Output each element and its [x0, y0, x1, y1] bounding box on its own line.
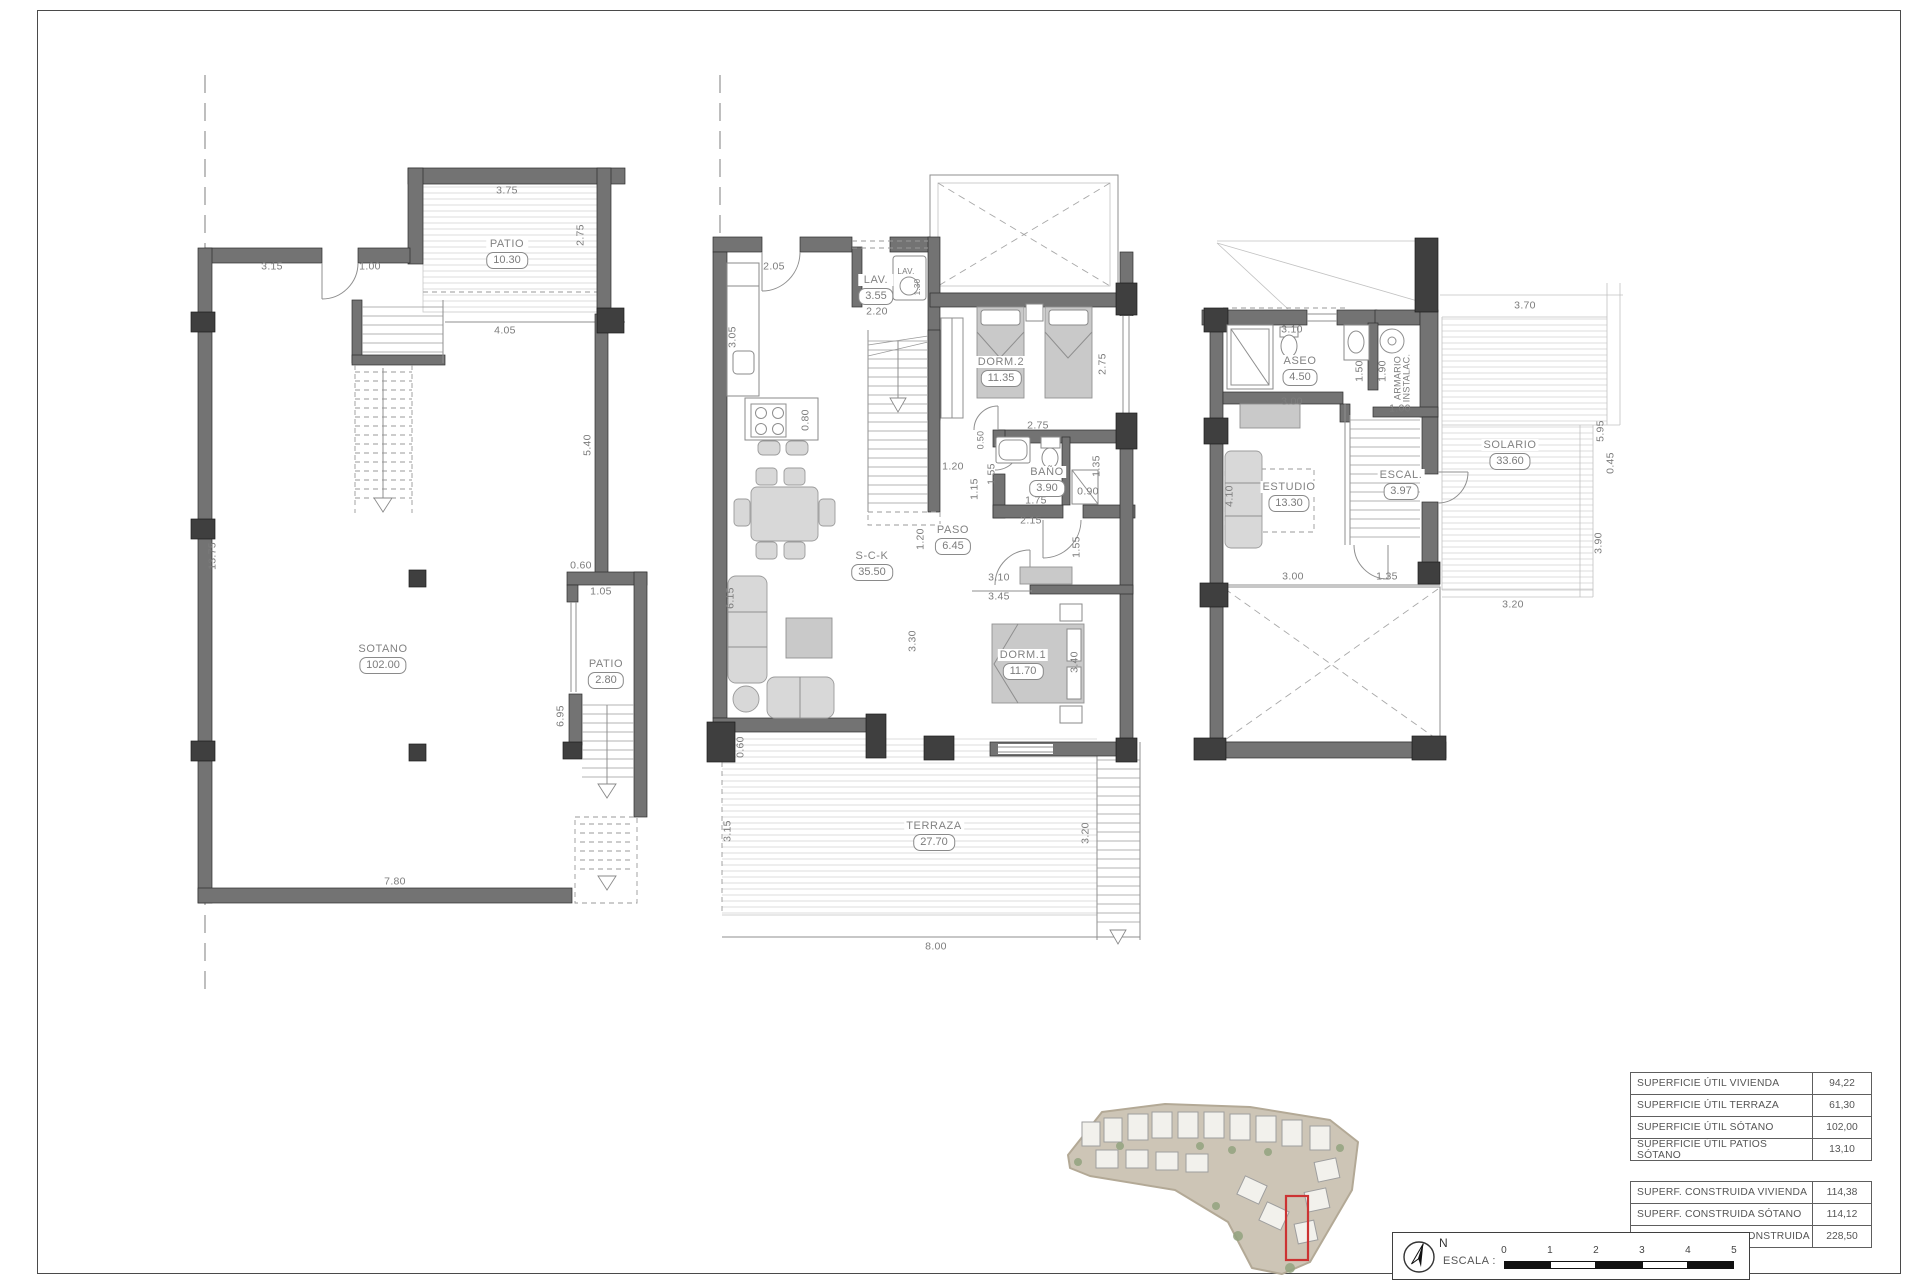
table-row: SUPERF. CONSTRUIDA SÓTANO 114,12 — [1631, 1204, 1871, 1226]
room-name: DORM.2 — [976, 356, 1026, 368]
room-label-paso: PASO6.45 — [935, 524, 971, 555]
room-name: ESCAL. — [1378, 469, 1425, 481]
room-label-terraza: TERRAZA27.70 — [904, 820, 964, 851]
room-area-badge: 10.30 — [486, 252, 528, 269]
table-superficie-util: SUPERFICIE ÚTIL VIVIENDA 94,22 SUPERFICI… — [1630, 1072, 1872, 1161]
room-area-badge: 33.60 — [1489, 453, 1531, 470]
room-name: ASEO — [1282, 355, 1319, 367]
room-name: SOLARIO — [1481, 439, 1538, 451]
room-label-dorm2: DORM.211.35 — [976, 356, 1026, 387]
room-label-lav: LAV.3.55 — [858, 274, 893, 305]
dim-label: 1.20 — [942, 461, 964, 472]
dim-label: 3.00 — [1282, 571, 1304, 582]
dim-label: 1.35 — [1376, 571, 1398, 582]
table-row: SUPERF. CONSTRUIDA VIVIENDA 114,38 — [1631, 1182, 1871, 1204]
room-label-sotano: SOTANO102.00 — [356, 643, 409, 674]
room-name: SOTANO — [356, 643, 409, 655]
dim-label: 3.30 — [907, 630, 918, 652]
dim-label: 2.15 — [1020, 515, 1042, 526]
table-cell-value: 13,10 — [1812, 1139, 1871, 1160]
dim-label: 3.10 — [1281, 324, 1303, 335]
dim-label: 2.20 — [866, 306, 888, 317]
dim-label: 2.75 — [1097, 353, 1108, 375]
room-label-patio: PATIO2.80 — [587, 658, 625, 689]
table-cell-label: SUPERFICIE ÚTIL PATIOS SÓTANO — [1631, 1139, 1812, 1161]
room-area-badge: 11.70 — [1003, 663, 1044, 680]
room-label-aseo: ASEO4.50 — [1282, 355, 1319, 386]
table-cell-value: 228,50 — [1812, 1226, 1871, 1247]
dim-label: 1.15 — [969, 478, 980, 500]
room-area-badge: 6.45 — [935, 538, 970, 555]
dim-label: 1.50 — [1354, 360, 1365, 382]
dim-label: 1.55 — [1071, 536, 1082, 558]
dim-label: 1.35 — [1091, 455, 1102, 477]
room-label-bao: BAÑO3.90 — [1028, 466, 1066, 497]
dim-label: 13.75 — [207, 542, 218, 570]
dim-label: 0.60 — [570, 560, 592, 571]
table-row: SUPERFICIE ÚTIL SÓTANO 102,00 — [1631, 1117, 1871, 1139]
room-name: PATIO — [486, 238, 528, 250]
table-cell-label: SUPERFICIE ÚTIL TERRAZA — [1631, 1100, 1812, 1111]
dim-label: 0.90 — [1077, 486, 1099, 497]
room-area-badge: 3.55 — [858, 288, 893, 305]
dim-label: 3.20 — [1502, 599, 1524, 610]
room-name: PATIO — [587, 658, 625, 670]
dim-label: 7.80 — [384, 876, 406, 887]
table-row: SUPERFICIE ÚTIL VIVIENDA 94,22 — [1631, 1073, 1871, 1095]
dim-label: 1.90 — [1377, 360, 1388, 382]
dim-label: 3.40 — [1069, 651, 1080, 673]
dim-label: 1.20 — [915, 528, 926, 550]
room-name: LAV. — [858, 274, 893, 286]
dim-label: 3.15 — [261, 261, 283, 272]
room-name: BAÑO — [1028, 466, 1066, 478]
dim-label: 1.05 — [590, 586, 612, 597]
table-cell-value: 102,00 — [1812, 1117, 1871, 1138]
dim-label: 4.05 — [494, 325, 516, 336]
dim-label: 1.30 — [914, 279, 922, 296]
table-cell-value: 114,38 — [1812, 1182, 1871, 1203]
dim-label: 3.05 — [727, 326, 738, 348]
scale-tick: 3 — [1639, 1245, 1645, 1256]
room-label-solario: SOLARIO33.60 — [1481, 439, 1538, 470]
dim-label: 3.15 — [722, 820, 733, 842]
dim-label: 6.15 — [725, 587, 736, 609]
table-cell-label: SUPERF. CONSTRUIDA SÓTANO — [1631, 1209, 1812, 1220]
table-cell-label: SUPERF. CONSTRUIDA VIVIENDA — [1631, 1187, 1812, 1198]
dim-label: 5.40 — [582, 434, 593, 456]
dim-label: 6.95 — [555, 705, 566, 727]
floor-plan-sheet: 3.753.151.002.754.0513.755.400.601.056.9… — [0, 0, 1920, 1280]
dim-label: 1.75 — [1025, 495, 1047, 506]
dim-label: 3.70 — [1514, 300, 1536, 311]
table-row: SUPERFICIE ÚTIL PATIOS SÓTANO 13,10 — [1631, 1139, 1871, 1160]
room-area-badge: 11.35 — [981, 370, 1022, 387]
room-name: PASO — [935, 524, 971, 536]
sheet-border — [37, 10, 1901, 1274]
dim-label: 0.60 — [735, 736, 746, 758]
dim-label: 2.75 — [1027, 420, 1049, 431]
dim-label: 5.95 — [1595, 420, 1606, 442]
scale-tick: 4 — [1685, 1245, 1691, 1256]
dim-label: 2.75 — [575, 224, 586, 246]
table-cell-value: 94,22 — [1812, 1073, 1871, 1094]
table-cell-value: 61,30 — [1812, 1095, 1871, 1116]
room-area-badge: 2.80 — [588, 672, 623, 689]
scale-tick: 5 — [1731, 1245, 1737, 1256]
room-area-badge: 27.70 — [913, 834, 955, 851]
dim-label: ARMARIO INSTALAC. — [1394, 354, 1413, 403]
dim-label: 3.45 — [988, 591, 1010, 602]
room-label-patio: PATIO10.30 — [486, 238, 528, 269]
scale-label: ESCALA : — [1443, 1255, 1496, 1267]
dim-label: 3.10 — [988, 572, 1010, 583]
dim-label: LAV. — [897, 268, 914, 276]
table-cell-label: SUPERFICIE ÚTIL SÓTANO — [1631, 1122, 1812, 1133]
table-cell-label: SUPERFICIE ÚTIL VIVIENDA — [1631, 1078, 1812, 1089]
scale-bar: N ESCALA : 0 1 2 3 4 5 — [1392, 1232, 1750, 1280]
room-area-badge: 13.30 — [1268, 495, 1310, 512]
room-label-sck: S-C-K35.50 — [851, 550, 893, 581]
dim-label: 3.00 — [1281, 396, 1303, 407]
dim-label: 0.45 — [1605, 452, 1616, 474]
room-area-badge: 3.90 — [1029, 480, 1064, 497]
room-name: ESTUDIO — [1260, 481, 1317, 493]
room-area-badge: 35.50 — [851, 564, 893, 581]
dim-label: 3.20 — [1080, 822, 1091, 844]
dim-label: 4.10 — [1224, 485, 1235, 507]
room-area-badge: 4.50 — [1282, 369, 1317, 386]
scale-ruler: 0 1 2 3 4 5 — [1502, 1245, 1734, 1275]
scale-tick: 2 — [1593, 1245, 1599, 1256]
table-row: SUPERFICIE ÚTIL TERRAZA 61,30 — [1631, 1095, 1871, 1117]
north-label: N — [1439, 1236, 1448, 1250]
table-cell-value: 114,12 — [1812, 1204, 1871, 1225]
room-name: TERRAZA — [904, 820, 964, 832]
room-area-badge: 3.97 — [1383, 483, 1418, 500]
dim-label: 1.55 — [986, 463, 997, 485]
dim-label: 3.90 — [1593, 532, 1604, 554]
room-name: S-C-K — [851, 550, 893, 562]
scale-tick: 0 — [1501, 1245, 1507, 1256]
room-name: DORM.1 — [998, 649, 1048, 661]
dim-label: 3.75 — [496, 185, 518, 196]
dim-label: 8.00 — [925, 941, 947, 952]
dim-label: 2.05 — [763, 261, 785, 272]
room-label-estudio: ESTUDIO13.30 — [1260, 481, 1317, 512]
room-label-escal: ESCAL.3.97 — [1378, 469, 1425, 500]
dim-label: 1.00 — [1389, 403, 1411, 414]
dim-label: 1.00 — [359, 261, 381, 272]
dim-label: 0.80 — [800, 409, 811, 431]
scale-tick: 1 — [1547, 1245, 1553, 1256]
dim-label: 0.50 — [976, 431, 985, 450]
room-label-dorm1: DORM.111.70 — [998, 649, 1048, 680]
north-arrow-icon — [1399, 1236, 1439, 1276]
room-area-badge: 102.00 — [359, 657, 407, 674]
